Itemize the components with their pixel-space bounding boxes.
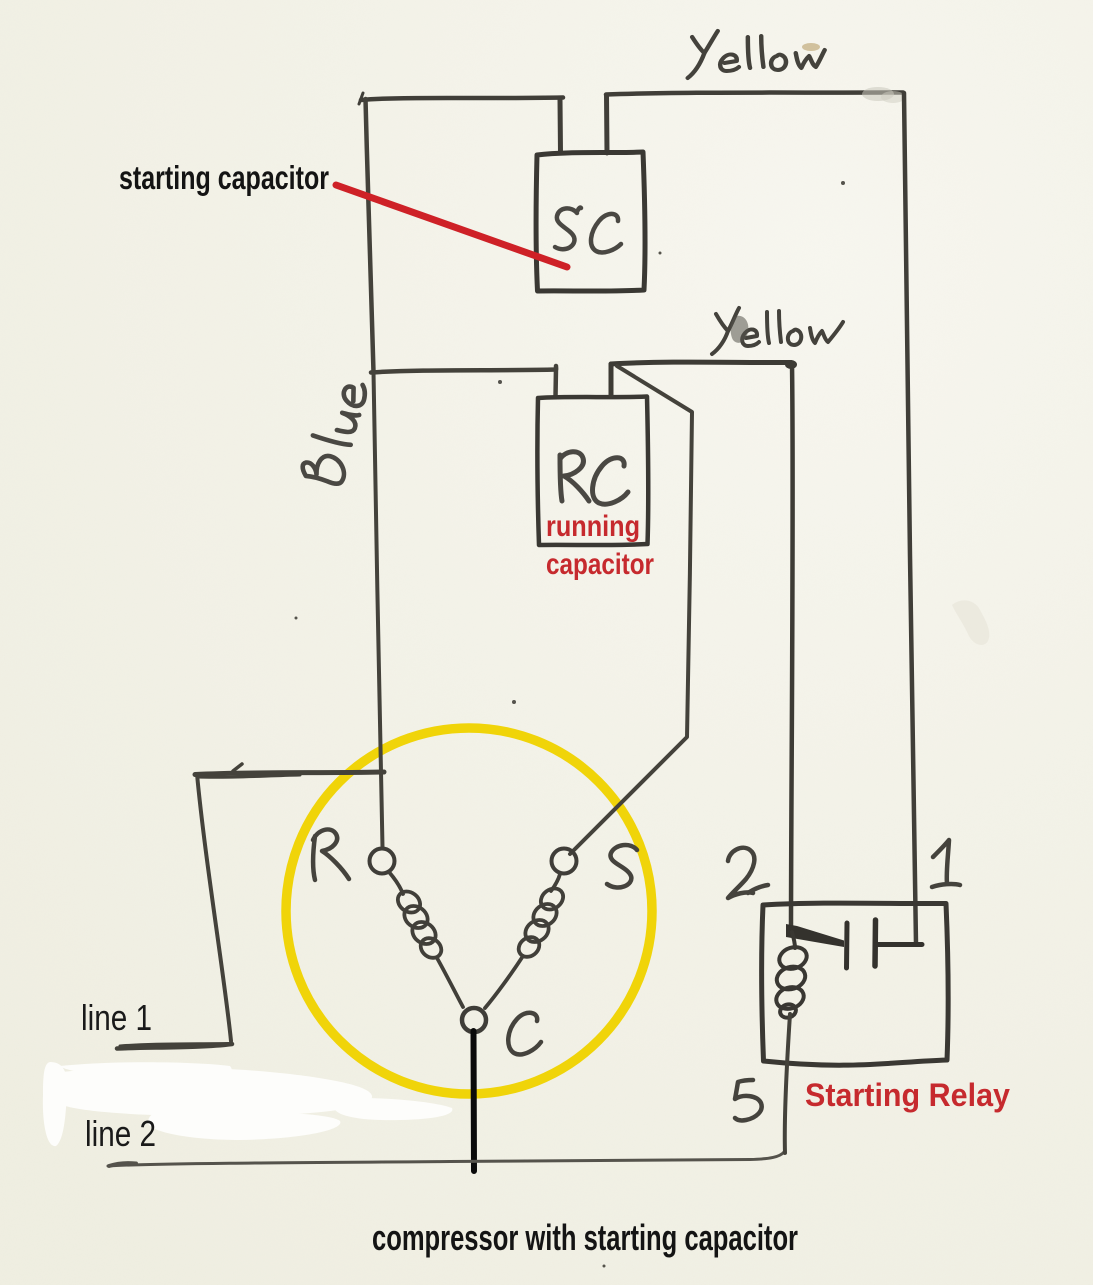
svg-text:starting capacitor: starting capacitor: [119, 159, 329, 196]
svg-text:compressor with starting capac: compressor with starting capacitor: [372, 1217, 798, 1258]
svg-text:running: running: [546, 510, 640, 543]
svg-text:Starting Relay: Starting Relay: [805, 1077, 1010, 1113]
svg-text:line 2: line 2: [85, 1113, 156, 1154]
svg-text:capacitor: capacitor: [546, 548, 654, 581]
svg-text:line 1: line 1: [81, 997, 152, 1038]
